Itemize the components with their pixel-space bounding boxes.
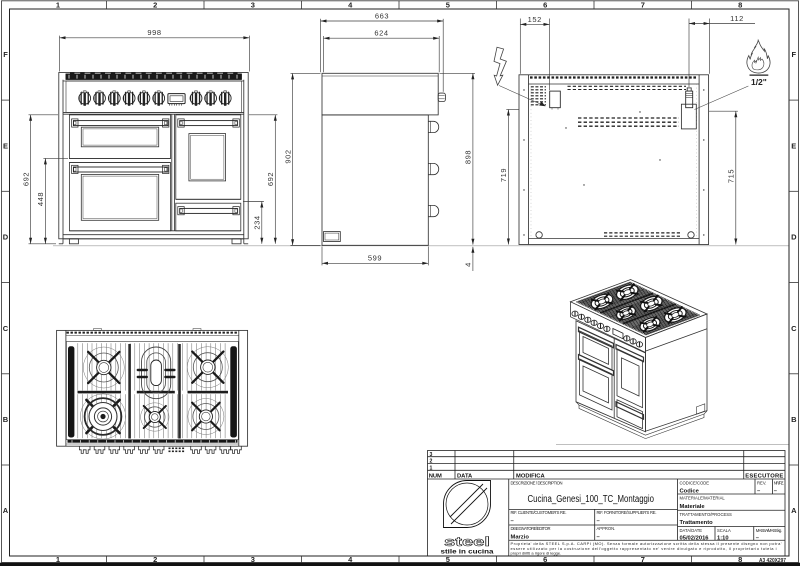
svg-text:448: 448: [36, 192, 45, 206]
svg-text:RIF. FORNITORE/SUPPLIER'S RE.: RIF. FORNITORE/SUPPLIER'S RE.: [597, 510, 657, 515]
svg-text:APPRON.: APPRON.: [597, 526, 616, 531]
svg-text:Trattamento: Trattamento: [680, 520, 714, 526]
svg-text:steel: steel: [444, 534, 490, 549]
svg-text:Materiale: Materiale: [680, 504, 706, 510]
svg-text:1/2": 1/2": [751, 77, 767, 87]
svg-text:TRATTAMENTO/PROCESS: TRATTAMENTO/PROCESS: [680, 512, 733, 517]
svg-text:F: F: [792, 50, 797, 59]
svg-text:Marzio: Marzio: [511, 535, 530, 541]
svg-text:2: 2: [153, 555, 157, 564]
svg-text:112: 112: [730, 14, 744, 23]
svg-text:D: D: [791, 233, 797, 242]
svg-text:NUM: NUM: [429, 474, 442, 480]
svg-text:3: 3: [251, 555, 255, 564]
svg-text:Codice: Codice: [680, 488, 700, 494]
svg-text:663: 663: [375, 11, 389, 20]
svg-text:2: 2: [153, 1, 157, 10]
svg-text:E: E: [791, 141, 796, 150]
svg-text:DESCRIZIONE / DESCRIPTION: DESCRIZIONE / DESCRIPTION: [511, 481, 563, 486]
svg-text:B: B: [3, 415, 9, 424]
svg-text:CODICE/CODE: CODICE/CODE: [680, 481, 710, 486]
svg-text:REV.: REV.: [757, 481, 766, 486]
svg-text:F: F: [3, 50, 8, 59]
svg-text:692: 692: [21, 172, 30, 186]
svg-text:1: 1: [430, 465, 433, 471]
svg-text:4: 4: [464, 262, 473, 267]
svg-text:SCALA: SCALA: [717, 528, 731, 533]
svg-text:3: 3: [251, 1, 255, 10]
svg-text:624: 624: [374, 29, 388, 38]
svg-text:1: 1: [56, 1, 60, 10]
svg-text:719: 719: [499, 168, 508, 182]
svg-text:propri diritti a rigore di leg: propri diritti a rigore di legge.: [511, 550, 562, 555]
svg-text:MODIFICA: MODIFICA: [516, 474, 545, 480]
svg-text:Cucina_Genesi_100_TC_Montaggio: Cucina_Genesi_100_TC_Montaggio: [528, 494, 655, 505]
svg-text:715: 715: [727, 169, 736, 183]
svg-text:A3 420X297: A3 420X297: [759, 558, 786, 564]
svg-text:2: 2: [430, 459, 433, 465]
svg-text:A: A: [791, 506, 797, 515]
svg-text:stile in cucina: stile in cucina: [441, 548, 495, 555]
svg-text:7: 7: [641, 1, 645, 10]
svg-text:898: 898: [464, 150, 473, 164]
svg-text:5: 5: [446, 1, 450, 10]
svg-text:234: 234: [253, 215, 262, 229]
svg-text:6: 6: [543, 1, 547, 10]
svg-text:MASSA/MASS kg.: MASSA/MASS kg.: [756, 528, 782, 533]
svg-text:3: 3: [430, 452, 433, 458]
svg-text:DATA: DATA: [457, 474, 473, 480]
svg-text:NR./PZ.: NR./PZ.: [774, 481, 784, 486]
svg-text:DISEGNATORE/EDITOR: DISEGNATORE/EDITOR: [511, 526, 551, 531]
svg-text:B: B: [791, 415, 797, 424]
svg-text:152: 152: [528, 15, 542, 24]
svg-text:599: 599: [368, 254, 382, 263]
svg-text:E: E: [3, 141, 8, 150]
svg-text:C: C: [791, 324, 797, 333]
svg-text:RIF. CLIENTE/CUSTOMER'S RE.: RIF. CLIENTE/CUSTOMER'S RE.: [511, 510, 567, 515]
svg-text:ESECUTORE: ESECUTORE: [745, 474, 783, 480]
svg-text:C: C: [3, 324, 9, 333]
svg-text:MATERIALE/MATERIAL: MATERIALE/MATERIAL: [680, 496, 726, 501]
svg-text:692: 692: [266, 172, 275, 186]
svg-text:8: 8: [738, 1, 742, 10]
svg-text:A: A: [3, 506, 9, 515]
svg-text:D: D: [3, 233, 9, 242]
svg-text:902: 902: [283, 149, 292, 163]
svg-text:998: 998: [147, 28, 161, 37]
svg-text:DATA/DATE: DATA/DATE: [680, 528, 703, 533]
svg-text:1: 1: [56, 555, 60, 564]
